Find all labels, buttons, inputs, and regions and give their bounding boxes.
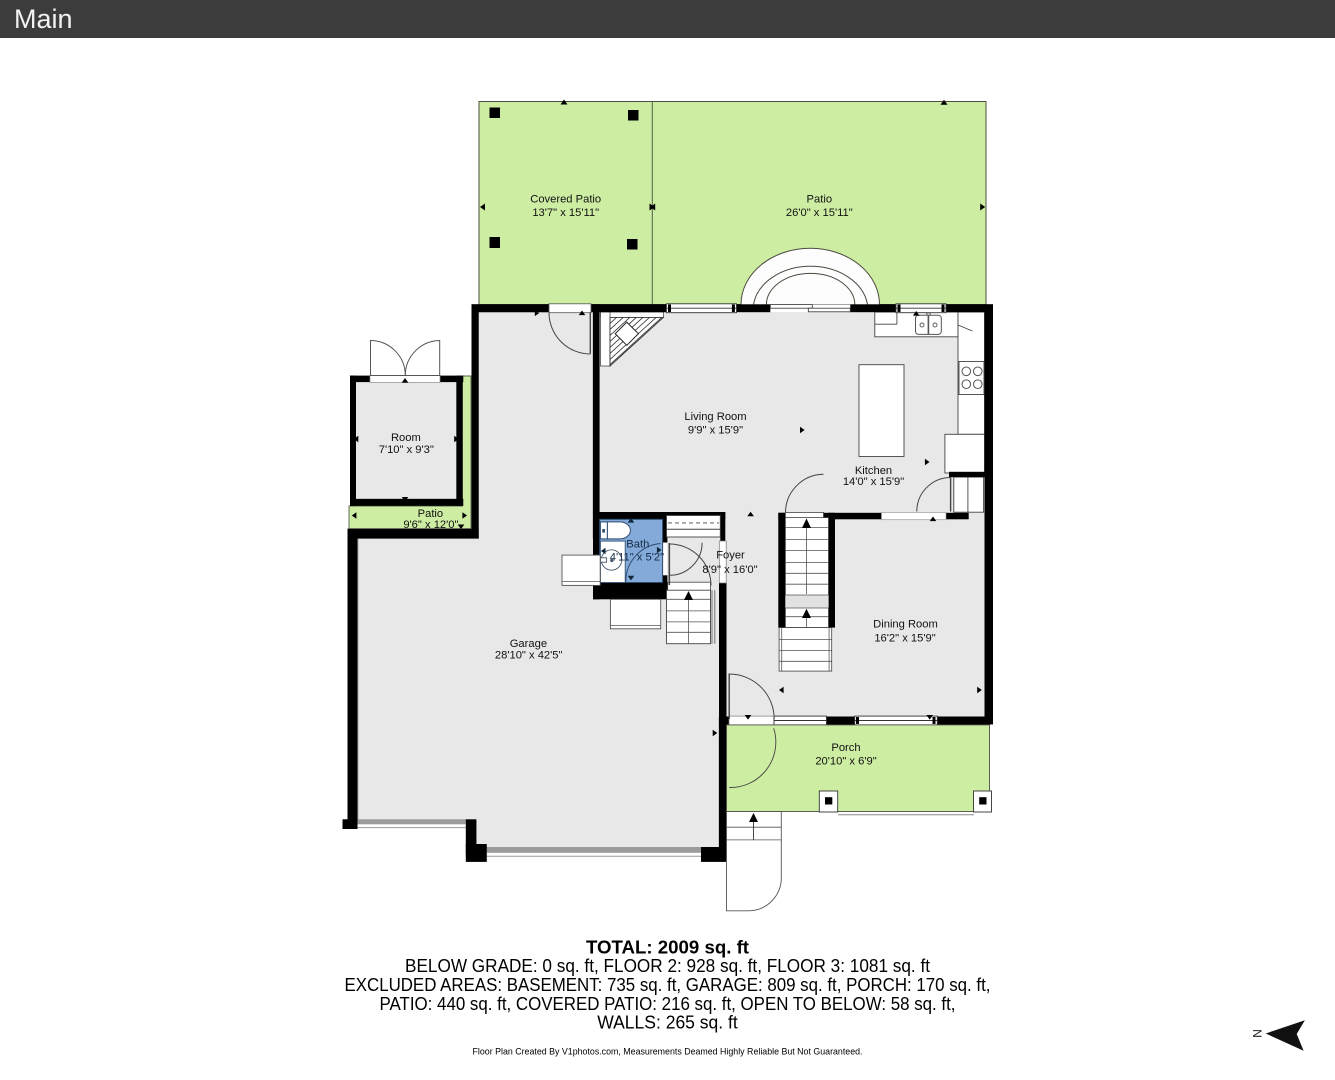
svg-text:8'9" x 16'0": 8'9" x 16'0" bbox=[702, 564, 757, 576]
svg-text:Main: Main bbox=[14, 4, 73, 34]
svg-text:Foyer: Foyer bbox=[716, 550, 745, 562]
svg-text:4'11" x 5'2": 4'11" x 5'2" bbox=[610, 552, 664, 564]
svg-text:9'6" x 12'0": 9'6" x 12'0" bbox=[403, 519, 458, 531]
svg-text:16'2" x 15'9": 16'2" x 15'9" bbox=[874, 633, 935, 645]
svg-text:20'10" x 6'9": 20'10" x 6'9" bbox=[815, 755, 876, 767]
svg-text:Covered Patio: Covered Patio bbox=[530, 193, 601, 205]
svg-text:Floor Plan Created By V1photos: Floor Plan Created By V1photos.com, Meas… bbox=[473, 1046, 863, 1057]
svg-text:Room: Room bbox=[391, 432, 421, 444]
svg-text:Patio: Patio bbox=[418, 508, 444, 520]
svg-text:28'10" x 42'5": 28'10" x 42'5" bbox=[495, 649, 563, 661]
svg-text:Bath: Bath bbox=[626, 538, 649, 550]
svg-text:7'10" x 9'3": 7'10" x 9'3" bbox=[379, 444, 434, 456]
svg-text:Living Room: Living Room bbox=[684, 411, 746, 423]
svg-text:Porch: Porch bbox=[831, 742, 860, 754]
svg-text:EXCLUDED AREAS: BASEMENT: 735: EXCLUDED AREAS: BASEMENT: 735 sq. ft, GA… bbox=[345, 974, 991, 995]
svg-text:26'0" x 15'11": 26'0" x 15'11" bbox=[786, 207, 853, 219]
svg-text:N: N bbox=[1250, 1029, 1264, 1038]
svg-text:Garage: Garage bbox=[510, 638, 547, 650]
svg-text:13'7" x 15'11": 13'7" x 15'11" bbox=[532, 207, 599, 219]
svg-text:WALLS: 265 sq. ft: WALLS: 265 sq. ft bbox=[597, 1012, 738, 1033]
svg-text:TOTAL: 2009 sq. ft: TOTAL: 2009 sq. ft bbox=[586, 936, 749, 957]
svg-text:9'9" x 15'9": 9'9" x 15'9" bbox=[688, 425, 743, 437]
svg-text:14'0" x 15'9": 14'0" x 15'9" bbox=[843, 476, 904, 488]
svg-text:Dining Room: Dining Room bbox=[873, 619, 938, 631]
svg-text:Patio: Patio bbox=[807, 193, 833, 205]
